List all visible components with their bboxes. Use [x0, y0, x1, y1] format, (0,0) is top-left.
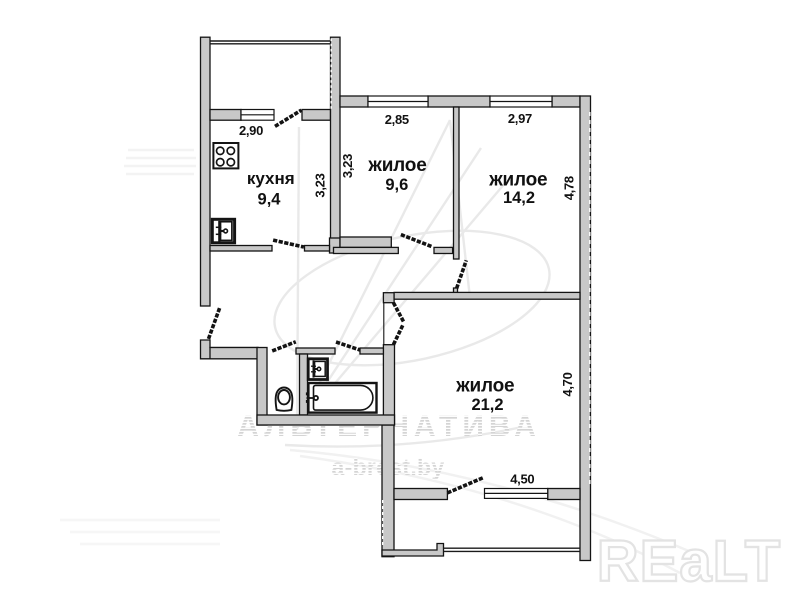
svg-text:REaLT: REaLT [597, 529, 781, 594]
svg-text:14,2: 14,2 [503, 189, 535, 207]
svg-text:2,97: 2,97 [508, 111, 532, 126]
svg-text:кухня: кухня [247, 169, 295, 188]
svg-text:9,4: 9,4 [258, 191, 282, 209]
svg-text:4,50: 4,50 [510, 472, 534, 487]
svg-text:21,2: 21,2 [471, 396, 503, 414]
svg-text:2,85: 2,85 [385, 112, 409, 127]
svg-text:2,90: 2,90 [239, 123, 263, 138]
svg-text:4,70: 4,70 [560, 372, 575, 396]
svg-text:жилое: жилое [488, 170, 547, 191]
svg-text:4,78: 4,78 [562, 176, 577, 200]
svg-text:жилое: жилое [367, 155, 426, 176]
svg-text:3,23: 3,23 [313, 173, 328, 197]
svg-text:9,6: 9,6 [385, 176, 408, 194]
svg-text:жилое: жилое [455, 376, 514, 397]
svg-text:3,23: 3,23 [340, 154, 355, 178]
